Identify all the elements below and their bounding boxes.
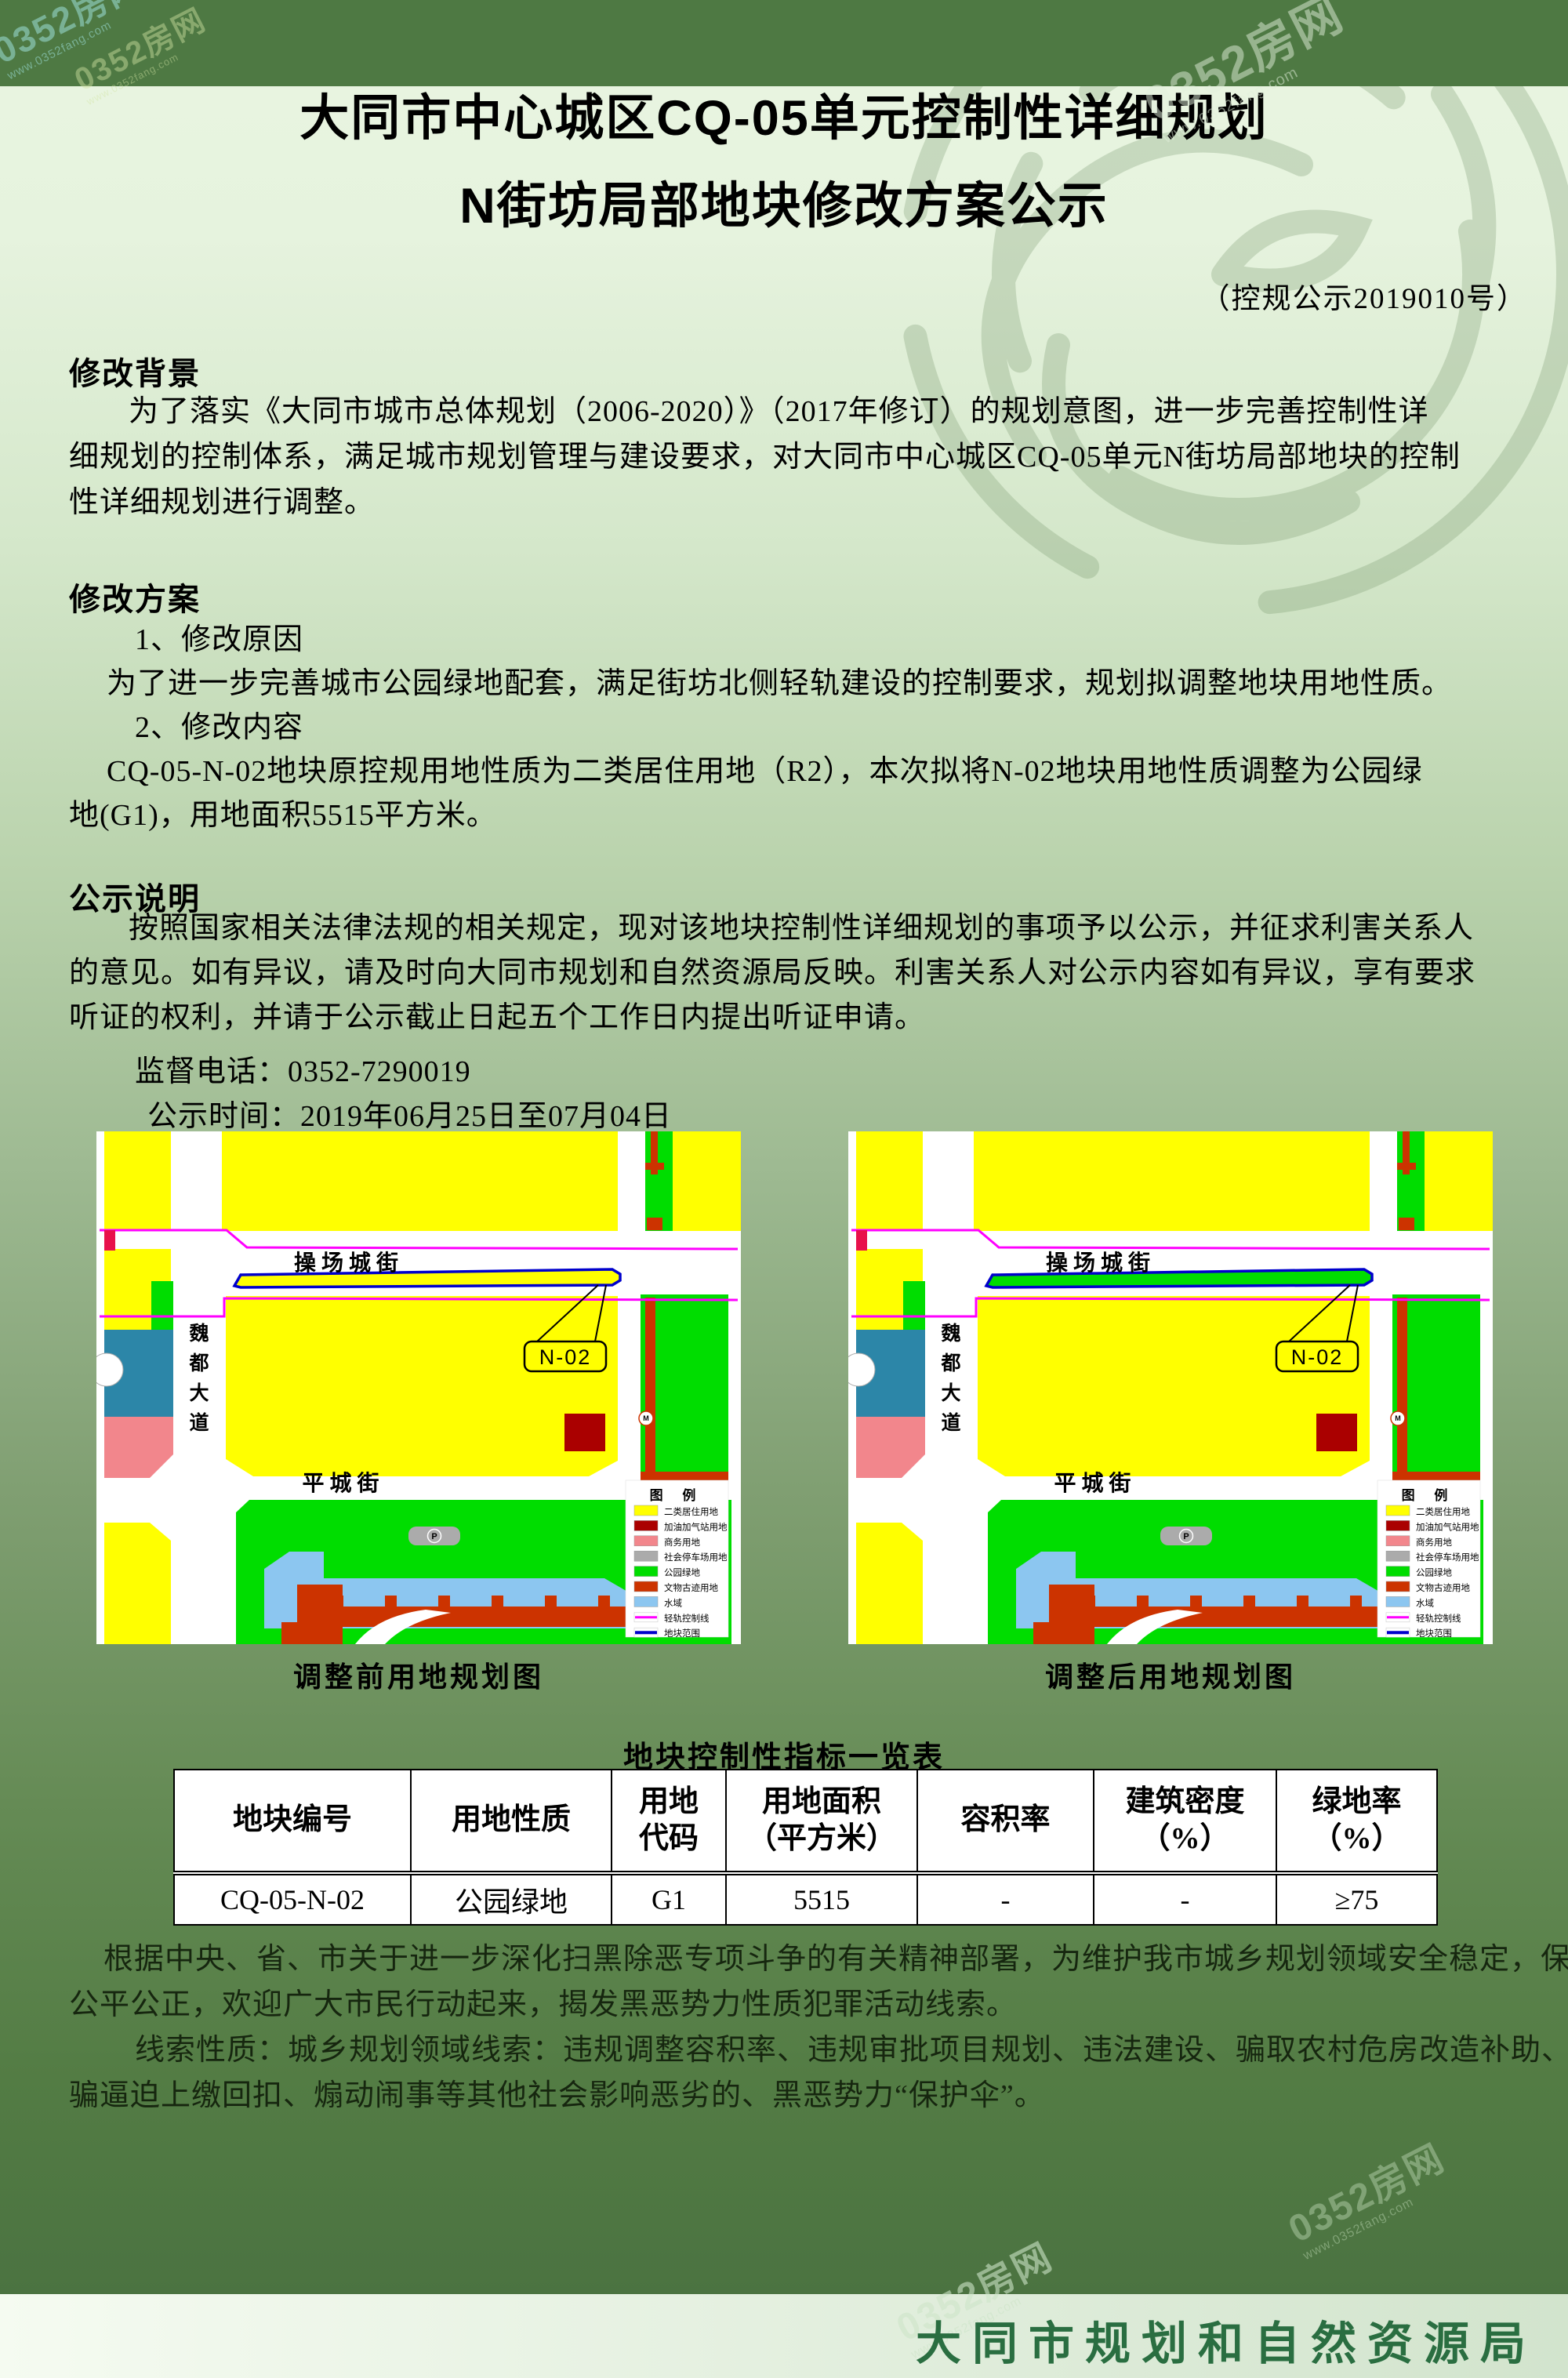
legend-label: 加油加气站用地 bbox=[664, 1521, 728, 1532]
landuse-map: P M N-02 操场城街 平城街 魏 都 大 道 图 例 二类居住用地加油加气… bbox=[96, 1131, 741, 1644]
text-line: 性详细规划进行调整。 bbox=[69, 480, 1551, 525]
legend-title: 图 例 bbox=[650, 1487, 704, 1503]
legend-label: 水域 bbox=[664, 1598, 682, 1608]
document-number: （控规公示2019010号） bbox=[1201, 274, 1528, 317]
legend-label: 二类居住用地 bbox=[664, 1506, 718, 1517]
legend-label: 地块范围 bbox=[1416, 1628, 1452, 1639]
street-left-label: 大 bbox=[189, 1382, 209, 1404]
legend-label: 加油加气站用地 bbox=[1416, 1521, 1479, 1532]
text-line: 骗逼迫上缴回扣、煽动闹事等其他社会影响恶劣的、黑恶势力“保护伞”。 bbox=[69, 2073, 1551, 2118]
legend-label: 社会停车场用地 bbox=[1416, 1552, 1479, 1563]
cell-density: - bbox=[1094, 1873, 1276, 1925]
supervision-phone: 监督电话：0352-7290019 bbox=[69, 1050, 1551, 1095]
gas-station-plot bbox=[1316, 1414, 1357, 1451]
text-line: CQ-05-N-02地块原控规用地性质为二类居住用地（R2），本次拟将N-02地… bbox=[69, 750, 1551, 793]
street-top-label: 操场城街 bbox=[1046, 1250, 1156, 1275]
svg-text:P: P bbox=[1183, 1532, 1189, 1541]
section-heading-plan: 修改方案 bbox=[69, 574, 201, 619]
street-left-label: 都 bbox=[188, 1352, 209, 1374]
legend-label: 水域 bbox=[1416, 1598, 1434, 1608]
text-line: 根据中央、省、市关于进一步深化扫黑除恶专项斗争的有关精神部署，为维护我市城乡规划… bbox=[69, 1937, 1551, 1982]
n02-label: N-02 bbox=[1291, 1345, 1344, 1369]
map-before: P M N-02 操场城街 平城街 魏 都 大 道 图 例 二类居住用地加油加气… bbox=[96, 1131, 741, 1644]
col-area: 用地面积（平方米） bbox=[726, 1770, 917, 1873]
legend-label: 文物古迹用地 bbox=[1416, 1582, 1470, 1593]
section-background-body: 为了落实《大同市城市总体规划（2006-2020）》（2017年修订）的规划意图… bbox=[69, 389, 1551, 525]
col-landuse: 用地性质 bbox=[411, 1770, 612, 1873]
page-title-line1: 大同市中心城区CQ-05单元控制性详细规划 bbox=[0, 78, 1568, 150]
page-title-line2: N街坊局部地块修改方案公示 bbox=[0, 166, 1568, 238]
legend-label: 社会停车场用地 bbox=[664, 1552, 728, 1563]
table-row: CQ-05-N-02 公园绿地 G1 5515 - - ≥75 bbox=[174, 1873, 1437, 1925]
text-line: 按照国家相关法律法规的相关规定，现对该地块控制性详细规划的事项予以公示，并征求利… bbox=[69, 906, 1551, 951]
street-left-label: 大 bbox=[941, 1382, 960, 1404]
text-line: 地(G1)，用地面积5515平方米。 bbox=[69, 793, 1551, 837]
street-left-label: 道 bbox=[941, 1411, 960, 1434]
text-line: 线索性质：城乡规划领域线索：违规调整容积率、违规审批项目规划、违法建设、骗取农村… bbox=[69, 2028, 1551, 2073]
street-left-label: 都 bbox=[940, 1352, 960, 1374]
col-green-rate: 绿地率（%） bbox=[1276, 1770, 1437, 1873]
legend-label: 文物古迹用地 bbox=[664, 1582, 718, 1593]
legend-title: 图 例 bbox=[1402, 1487, 1456, 1503]
n02-label: N-02 bbox=[539, 1345, 592, 1369]
section-plan-body: 1、修改原因 为了进一步完善城市公园绿地配套，满足街坊北侧轻轨建设的控制要求，规… bbox=[69, 618, 1551, 837]
text-line: 2、修改内容 bbox=[69, 706, 1551, 750]
text-line: 公平公正，欢迎广大市民行动起来，揭发黑恶势力性质犯罪活动线索。 bbox=[69, 1982, 1551, 2028]
map-before-canvas: P M N-02 操场城街 平城街 魏 都 大 道 图 例 二类居住用地加油加气… bbox=[96, 1131, 741, 1648]
cell-landuse: 公园绿地 bbox=[411, 1873, 612, 1925]
notice-poster: 0352房网 www.0352fang.com 0352房网 www.0352f… bbox=[0, 0, 1568, 2378]
text-line: 的意见。如有异议，请及时向大同市规划和自然资源局反映。利害关系人对公示内容如有异… bbox=[69, 951, 1551, 996]
text-line: 为了进一步完善城市公园绿地配套，满足街坊北侧轻轨建设的控制要求，规划拟调整地块用… bbox=[69, 662, 1551, 706]
caption-map-before: 调整前用地规划图 bbox=[96, 1654, 741, 1695]
col-density: 建筑密度（%） bbox=[1094, 1770, 1276, 1873]
cell-area: 5515 bbox=[726, 1873, 917, 1925]
table-header-row: 地块编号 用地性质 用地代码 用地面积（平方米） 容积率 建筑密度（%） 绿地率… bbox=[174, 1770, 1437, 1873]
landuse-map: P M N-02 操场城街 平城街 魏 都 大 道 图 例 二类居住用地加油加气… bbox=[848, 1131, 1493, 1644]
svg-text:P: P bbox=[431, 1532, 437, 1541]
cell-far: - bbox=[917, 1873, 1094, 1925]
caption-map-after: 调整后用地规划图 bbox=[848, 1654, 1493, 1695]
col-code: 用地代码 bbox=[612, 1770, 726, 1873]
street-left-label: 魏 bbox=[188, 1323, 209, 1345]
street-top-label: 操场城街 bbox=[294, 1250, 404, 1275]
legend-label: 公园绿地 bbox=[664, 1567, 700, 1578]
text-line: 为了落实《大同市城市总体规划（2006-2020）》（2017年修订）的规划意图… bbox=[69, 389, 1551, 434]
legend-label: 商务用地 bbox=[1416, 1537, 1452, 1548]
text-line: 细规划的控制体系，满足城市规划管理与建设要求，对大同市中心城区CQ-05单元N街… bbox=[69, 434, 1551, 480]
col-far: 容积率 bbox=[917, 1770, 1094, 1873]
street-bottom-label: 平城街 bbox=[302, 1470, 384, 1495]
gas-station-plot bbox=[564, 1414, 605, 1451]
section-heading-background: 修改背景 bbox=[69, 348, 201, 394]
cell-plot-id: CQ-05-N-02 bbox=[174, 1873, 411, 1925]
section-notice-body: 按照国家相关法律法规的相关规定，现对该地块控制性详细规划的事项予以公示，并征求利… bbox=[69, 906, 1551, 1139]
legend-label: 地块范围 bbox=[664, 1628, 700, 1639]
agency-name: 大同市规划和自然资源局 bbox=[916, 2307, 1537, 2373]
street-bottom-label: 平城街 bbox=[1054, 1470, 1136, 1495]
text-line: 听证的权利，并请于公示截止日起五个工作日内提出听证申请。 bbox=[69, 996, 1551, 1040]
map-after: P M N-02 操场城街 平城街 魏 都 大 道 图 例 二类居住用地加油加气… bbox=[848, 1131, 1493, 1644]
notes-body: 根据中央、省、市关于进一步深化扫黑除恶专项斗争的有关精神部署，为维护我市城乡规划… bbox=[69, 1937, 1551, 2118]
svg-text:M: M bbox=[643, 1414, 649, 1422]
text-line: 1、修改原因 bbox=[69, 618, 1551, 662]
cell-green-rate: ≥75 bbox=[1276, 1873, 1437, 1925]
map-after-canvas: P M N-02 操场城街 平城街 魏 都 大 道 图 例 二类居住用地加油加气… bbox=[848, 1131, 1493, 1648]
legend-label: 轻轨控制线 bbox=[1416, 1613, 1461, 1624]
legend-label: 轻轨控制线 bbox=[664, 1613, 710, 1624]
cell-code: G1 bbox=[612, 1873, 726, 1925]
legend-label: 二类居住用地 bbox=[1416, 1506, 1470, 1517]
street-left-label: 魏 bbox=[940, 1323, 960, 1345]
svg-text:M: M bbox=[1395, 1414, 1401, 1422]
street-left-label: 道 bbox=[189, 1411, 209, 1434]
col-plot-id: 地块编号 bbox=[174, 1770, 411, 1873]
metrics-table: 地块编号 用地性质 用地代码 用地面积（平方米） 容积率 建筑密度（%） 绿地率… bbox=[173, 1769, 1438, 1926]
legend-label: 公园绿地 bbox=[1416, 1567, 1452, 1578]
legend-label: 商务用地 bbox=[664, 1537, 700, 1548]
